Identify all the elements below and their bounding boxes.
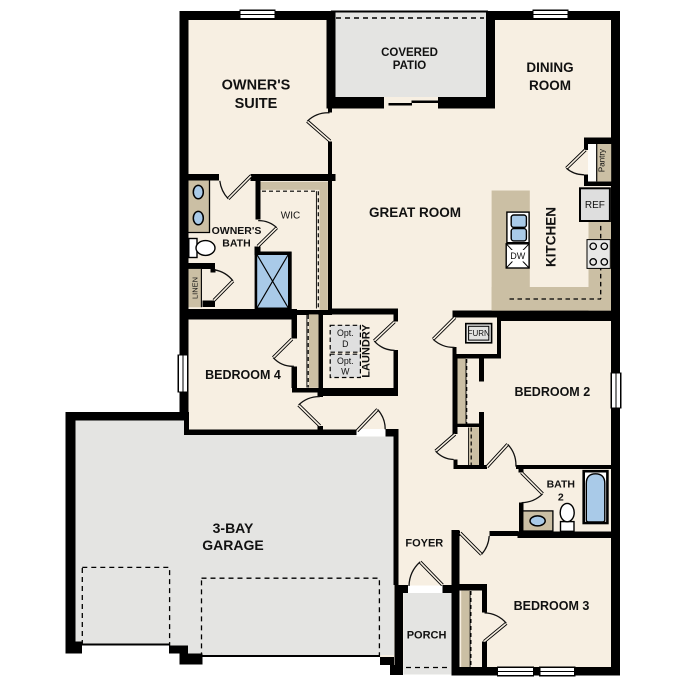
svg-text:SUITE: SUITE bbox=[235, 96, 278, 112]
svg-text:3-BAY: 3-BAY bbox=[213, 520, 254, 536]
svg-text:LINEN: LINEN bbox=[191, 277, 200, 299]
svg-text:FURN: FURN bbox=[468, 329, 490, 338]
svg-text:REF: REF bbox=[585, 200, 605, 211]
svg-text:OWNER'S: OWNER'S bbox=[222, 78, 291, 94]
svg-text:BATH: BATH bbox=[547, 479, 575, 491]
svg-text:OWNER'S: OWNER'S bbox=[212, 225, 262, 237]
svg-text:PATIO: PATIO bbox=[393, 60, 426, 72]
svg-text:PORCH: PORCH bbox=[407, 630, 447, 642]
svg-text:D: D bbox=[342, 339, 348, 349]
svg-text:FOYER: FOYER bbox=[405, 538, 443, 550]
svg-text:KITCHEN: KITCHEN bbox=[544, 207, 559, 267]
svg-text:DINING: DINING bbox=[526, 60, 573, 75]
svg-text:ROOM: ROOM bbox=[529, 78, 571, 93]
svg-text:GARAGE: GARAGE bbox=[202, 537, 263, 553]
svg-text:Opt.: Opt. bbox=[337, 356, 354, 366]
svg-text:Opt.: Opt. bbox=[337, 328, 354, 338]
svg-text:DW: DW bbox=[510, 251, 525, 261]
svg-text:BEDROOM 4: BEDROOM 4 bbox=[205, 368, 281, 382]
svg-text:GREAT ROOM: GREAT ROOM bbox=[369, 205, 461, 220]
svg-text:WIC: WIC bbox=[281, 211, 300, 222]
svg-text:2: 2 bbox=[558, 492, 564, 504]
svg-text:BEDROOM 3: BEDROOM 3 bbox=[514, 599, 590, 613]
svg-text:COVERED: COVERED bbox=[381, 47, 438, 59]
svg-text:LAUNDRY: LAUNDRY bbox=[361, 324, 373, 378]
svg-text:Pantry: Pantry bbox=[598, 149, 607, 172]
svg-text:BATH: BATH bbox=[222, 238, 250, 250]
svg-text:W: W bbox=[341, 367, 350, 377]
svg-text:BEDROOM 2: BEDROOM 2 bbox=[514, 385, 590, 399]
